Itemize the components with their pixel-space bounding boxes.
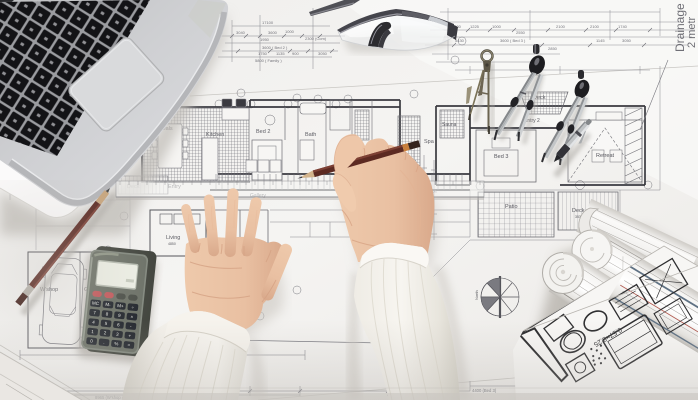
svg-text:900: 900 bbox=[292, 51, 299, 56]
svg-text:3600 ( Bed 2 ): 3600 ( Bed 2 ) bbox=[262, 45, 288, 50]
svg-text:Bed 3: Bed 3 bbox=[494, 154, 508, 160]
svg-text:1740: 1740 bbox=[618, 24, 628, 29]
svg-text:1750: 1750 bbox=[258, 51, 268, 56]
svg-text:Spa: Spa bbox=[424, 139, 435, 145]
svg-text:2850: 2850 bbox=[548, 46, 558, 51]
svg-text:Sauna: Sauna bbox=[442, 122, 457, 128]
svg-text:1000: 1000 bbox=[285, 29, 295, 34]
svg-text:3600 ( Bed 3 ): 3600 ( Bed 3 ) bbox=[500, 38, 526, 43]
svg-text:3600: 3600 bbox=[268, 30, 278, 35]
svg-text:Kitchen: Kitchen bbox=[206, 132, 224, 138]
svg-text:1225: 1225 bbox=[470, 24, 480, 29]
svg-text:Drainage: Drainage bbox=[673, 3, 687, 52]
svg-text:3050: 3050 bbox=[318, 51, 328, 56]
svg-text:1950: 1950 bbox=[260, 37, 270, 42]
svg-text:Bed 2: Bed 2 bbox=[256, 129, 270, 135]
svg-text:5430: 5430 bbox=[455, 38, 465, 43]
svg-text:Living: Living bbox=[166, 235, 180, 241]
svg-text:2100: 2100 bbox=[590, 24, 600, 29]
svg-text:3040: 3040 bbox=[236, 30, 246, 35]
svg-text:5800 ( Family ): 5800 ( Family ) bbox=[255, 58, 282, 63]
svg-text:Bath: Bath bbox=[305, 132, 316, 138]
svg-text:Retreat: Retreat bbox=[596, 153, 615, 159]
svg-text:2300 (Com): 2300 (Com) bbox=[305, 36, 327, 41]
svg-text:3050: 3050 bbox=[622, 38, 632, 43]
svg-text:17100: 17100 bbox=[262, 20, 274, 25]
svg-text:2100: 2100 bbox=[556, 24, 566, 29]
svg-text:North: North bbox=[474, 290, 479, 300]
svg-text:2 metr: 2 metr bbox=[686, 16, 698, 48]
svg-text:4850: 4850 bbox=[168, 242, 176, 246]
svg-text:1145: 1145 bbox=[596, 38, 605, 43]
svg-text:2550: 2550 bbox=[516, 30, 526, 35]
svg-text:1135: 1135 bbox=[276, 51, 285, 56]
svg-text:1000: 1000 bbox=[492, 24, 502, 29]
